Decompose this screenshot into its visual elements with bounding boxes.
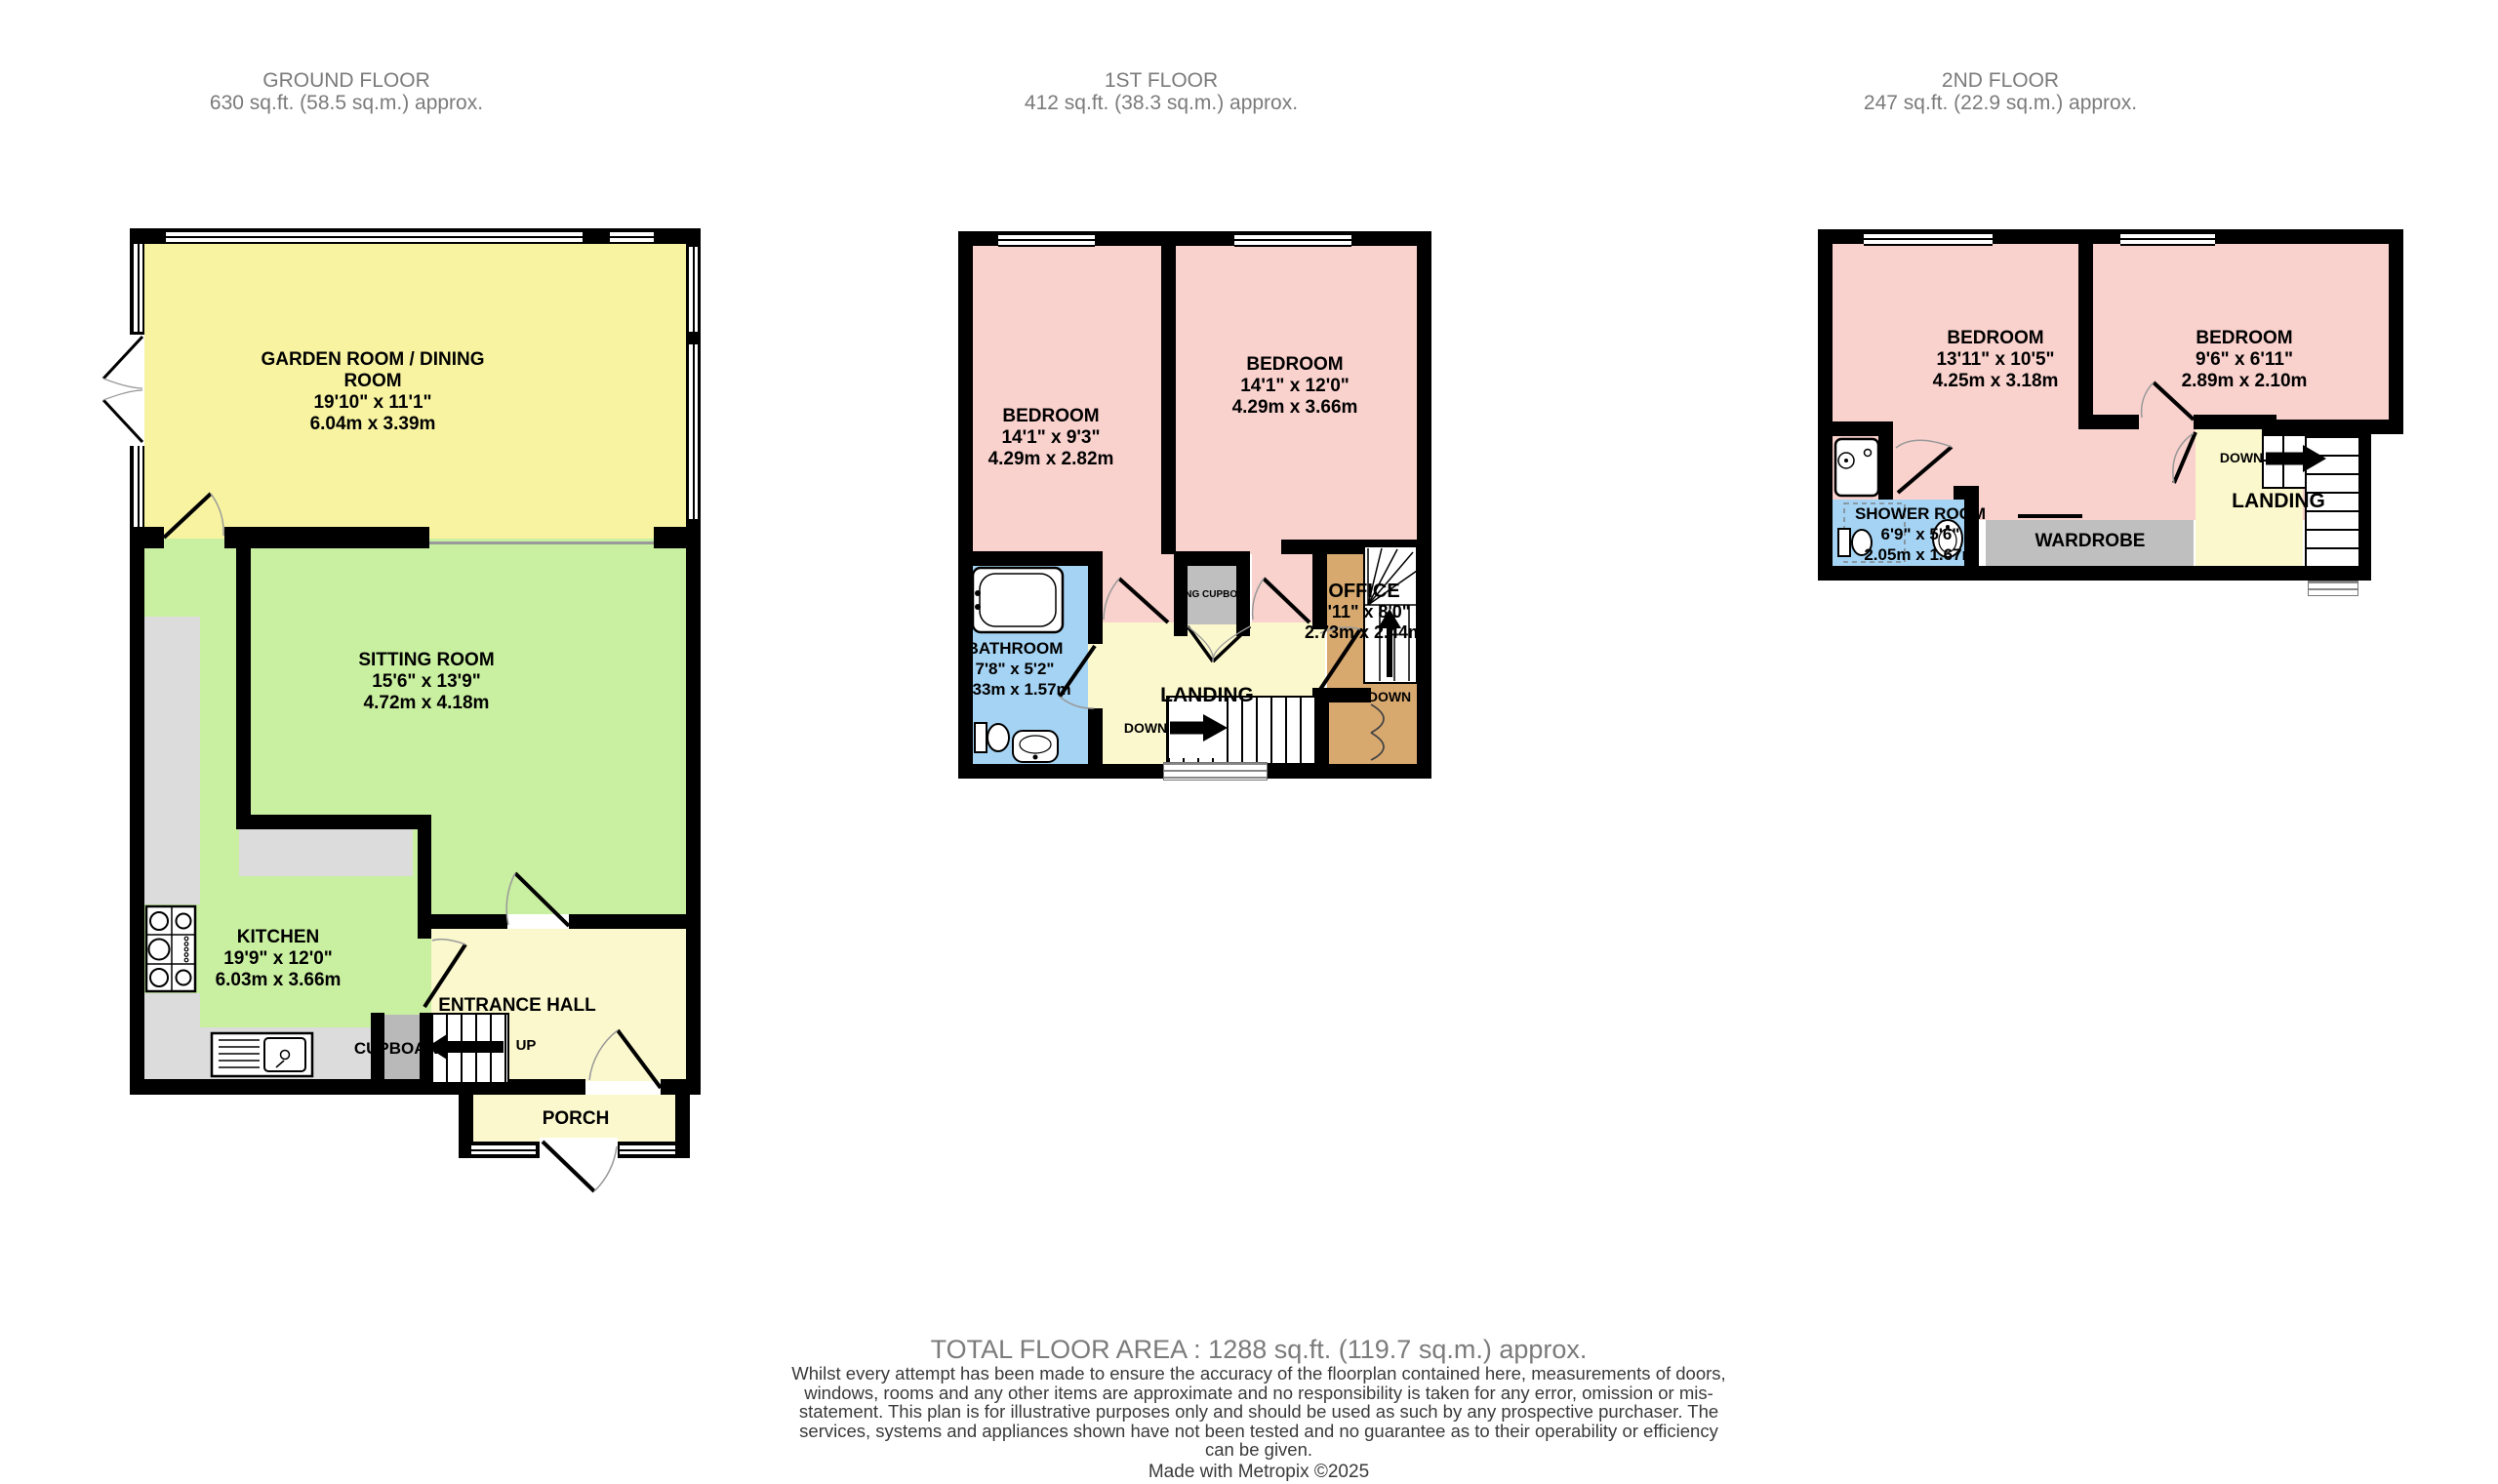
label-sitting-room: SITTING ROOM 15'6" x 13'9" 4.72m x 4.18m — [358, 650, 494, 714]
label-office: OFFICE 8'11" x 8'0" 2.73m x 2.44m — [1305, 582, 1424, 643]
label-line: 14'1" x 9'3" — [988, 427, 1114, 449]
label-bedroom-left-second: BEDROOM 13'11" x 10'5" 4.25m x 3.18m — [1933, 328, 2059, 392]
wall — [418, 914, 507, 929]
label-line: OFFICE — [1305, 582, 1424, 602]
wall — [2078, 244, 2093, 429]
window — [132, 446, 144, 527]
kitchen-counter-bottom — [144, 1027, 373, 1080]
label-line: 2.33m x 1.57m — [958, 679, 1070, 700]
wall — [1236, 551, 1250, 636]
label-up: UP — [516, 1037, 537, 1054]
label-line: BEDROOM — [988, 406, 1114, 427]
label-line: BATHROOM — [958, 638, 1070, 659]
label-line: 19'10" x 11'1" — [261, 392, 484, 414]
window — [166, 230, 583, 244]
wall — [1088, 708, 1103, 779]
label-bathroom: BATHROOM 7'8" x 5'2" 2.33m x 1.57m — [958, 638, 1070, 700]
wall — [236, 815, 431, 829]
label-line: 14'1" x 12'0" — [1232, 376, 1358, 397]
label-line: 2.73m x 2.44m — [1305, 622, 1424, 643]
label-porch: PORCH — [543, 1108, 610, 1130]
label-line: 8'11" x 8'0" — [1305, 602, 1424, 622]
wall — [224, 527, 429, 548]
label-line: 15'6" x 13'9" — [358, 671, 494, 693]
wardrobe-top-line — [2018, 514, 2082, 518]
wall — [2262, 420, 2403, 434]
stair-landing-area — [1169, 699, 1223, 758]
label-landing-first: LANDING — [1160, 685, 1254, 706]
wall — [2078, 415, 2139, 429]
kitchen-counter-middle — [239, 829, 413, 876]
window — [620, 1143, 675, 1156]
wall — [1281, 540, 1417, 554]
label-line: 9'6" x 6'11" — [2182, 349, 2308, 371]
wall — [130, 1079, 585, 1095]
label-kitchen: KITCHEN 19'9" x 12'0" 6.03m x 3.66m — [216, 927, 342, 991]
wall — [1161, 246, 1176, 554]
kitchen-counter-left-lower — [144, 993, 200, 1031]
label-line: 2.89m x 2.10m — [2182, 371, 2308, 392]
window — [610, 230, 654, 244]
second-floor-area: 247 sq.ft. (22.9 sq.m.) approx. — [1864, 92, 2137, 114]
wall — [1818, 566, 2371, 581]
window — [687, 247, 700, 332]
window — [998, 233, 1095, 247]
window — [1864, 232, 1993, 246]
label-line: SHOWER ROOM — [1855, 503, 1986, 524]
label-bedroom-right-first: BEDROOM 14'1" x 12'0" 4.29m x 3.66m — [1232, 354, 1358, 419]
label-line: 4.29m x 3.66m — [1232, 397, 1358, 419]
wall — [958, 551, 1103, 566]
wall — [1818, 229, 1833, 581]
label-line: 6.04m x 3.39m — [261, 414, 484, 435]
label-bedroom-left-first: BEDROOM 14'1" x 9'3" 4.29m x 2.82m — [988, 406, 1114, 470]
label-cupboard: CUPBOARD — [354, 1038, 450, 1059]
label-garden-room: GARDEN ROOM / DINING ROOM 19'10" x 11'1"… — [261, 349, 484, 435]
label-entrance-hall: ENTRANCE HALL — [438, 995, 596, 1017]
label-line: BEDROOM — [1232, 354, 1358, 376]
wall — [569, 914, 686, 929]
label-line: 4.29m x 2.82m — [988, 449, 1114, 470]
window — [132, 244, 144, 332]
french-door-opening — [130, 335, 144, 446]
label-line: 6'9" x 5'6" — [1855, 524, 1986, 544]
wall — [2389, 229, 2403, 434]
label-line: 4.72m x 4.18m — [358, 693, 494, 714]
label-line: 2.05m x 1.67m — [1855, 544, 1986, 565]
label-line: 13'11" x 10'5" — [1933, 349, 2059, 371]
stair-overflow — [1163, 762, 1268, 781]
window — [2120, 232, 2215, 246]
porch-door-opening — [540, 1138, 618, 1161]
label-line: KITCHEN — [216, 927, 342, 948]
credit-text: Made with Metropix ©2025 — [1148, 1462, 1369, 1482]
wall — [654, 527, 701, 548]
wall — [1878, 421, 1893, 500]
wall — [1954, 486, 1979, 500]
total-floor-area: TOTAL FLOOR AREA : 1288 sq.ft. (119.7 sq… — [931, 1335, 1588, 1364]
label-line: 7'8" x 5'2" — [958, 659, 1070, 679]
label-line: GARDEN ROOM / DINING — [261, 349, 484, 371]
window — [471, 1143, 536, 1156]
disclaimer-text: Whilst every attempt has been made to en… — [790, 1364, 1727, 1460]
bedroom-left-recess — [1103, 554, 1176, 622]
label-down-first-landing: DOWN — [1124, 720, 1167, 736]
staircase-winder-top — [2262, 434, 2309, 489]
wall — [1088, 551, 1103, 644]
building-step — [2371, 434, 2405, 581]
kitchen-counter-left — [144, 617, 200, 904]
window — [1234, 233, 1351, 247]
stair-overflow — [2308, 581, 2358, 596]
label-down-second: DOWN — [2220, 450, 2263, 465]
label-landing-second: LANDING — [2232, 491, 2325, 512]
first-floor-area: 412 sq.ft. (38.3 sq.m.) approx. — [1025, 92, 1298, 114]
ground-floor-area: 630 sq.ft. (58.5 sq.m.) approx. — [210, 92, 483, 114]
wall — [1312, 688, 1371, 702]
window — [687, 344, 700, 519]
label-line: BEDROOM — [2182, 328, 2308, 349]
first-floor-title: 1ST FLOOR — [1105, 69, 1218, 92]
floorplan-canvas: GROUND FLOOR 630 sq.ft. (58.5 sq.m.) app… — [0, 0, 2498, 1484]
label-bedroom-right-second: BEDROOM 9'6" x 6'11" 2.89m x 2.10m — [2182, 328, 2308, 392]
label-down-first-office: DOWN — [1368, 689, 1411, 704]
wall — [1417, 231, 1431, 779]
label-wardrobe: WARDROBE — [2035, 531, 2146, 552]
wall — [583, 228, 610, 244]
open-plan-divider — [429, 541, 654, 544]
wall — [130, 527, 164, 548]
second-floor-title: 2ND FLOOR — [1942, 69, 2059, 92]
label-line: 4.25m x 3.18m — [1933, 371, 2059, 392]
label-shower-room: SHOWER ROOM 6'9" x 5'6" 2.05m x 1.67m — [1855, 503, 1986, 565]
wall — [2194, 415, 2276, 429]
wall — [236, 539, 251, 829]
label-line: BEDROOM — [1933, 328, 2059, 349]
label-airing-cupboard: AIRING CUPBOARD — [1186, 564, 1238, 624]
label-line: SITTING ROOM — [358, 650, 494, 671]
label-line: 19'9" x 12'0" — [216, 948, 342, 970]
ground-floor-title: GROUND FLOOR — [262, 69, 430, 92]
label-line: ROOM — [261, 371, 484, 392]
label-line: 6.03m x 3.66m — [216, 970, 342, 991]
